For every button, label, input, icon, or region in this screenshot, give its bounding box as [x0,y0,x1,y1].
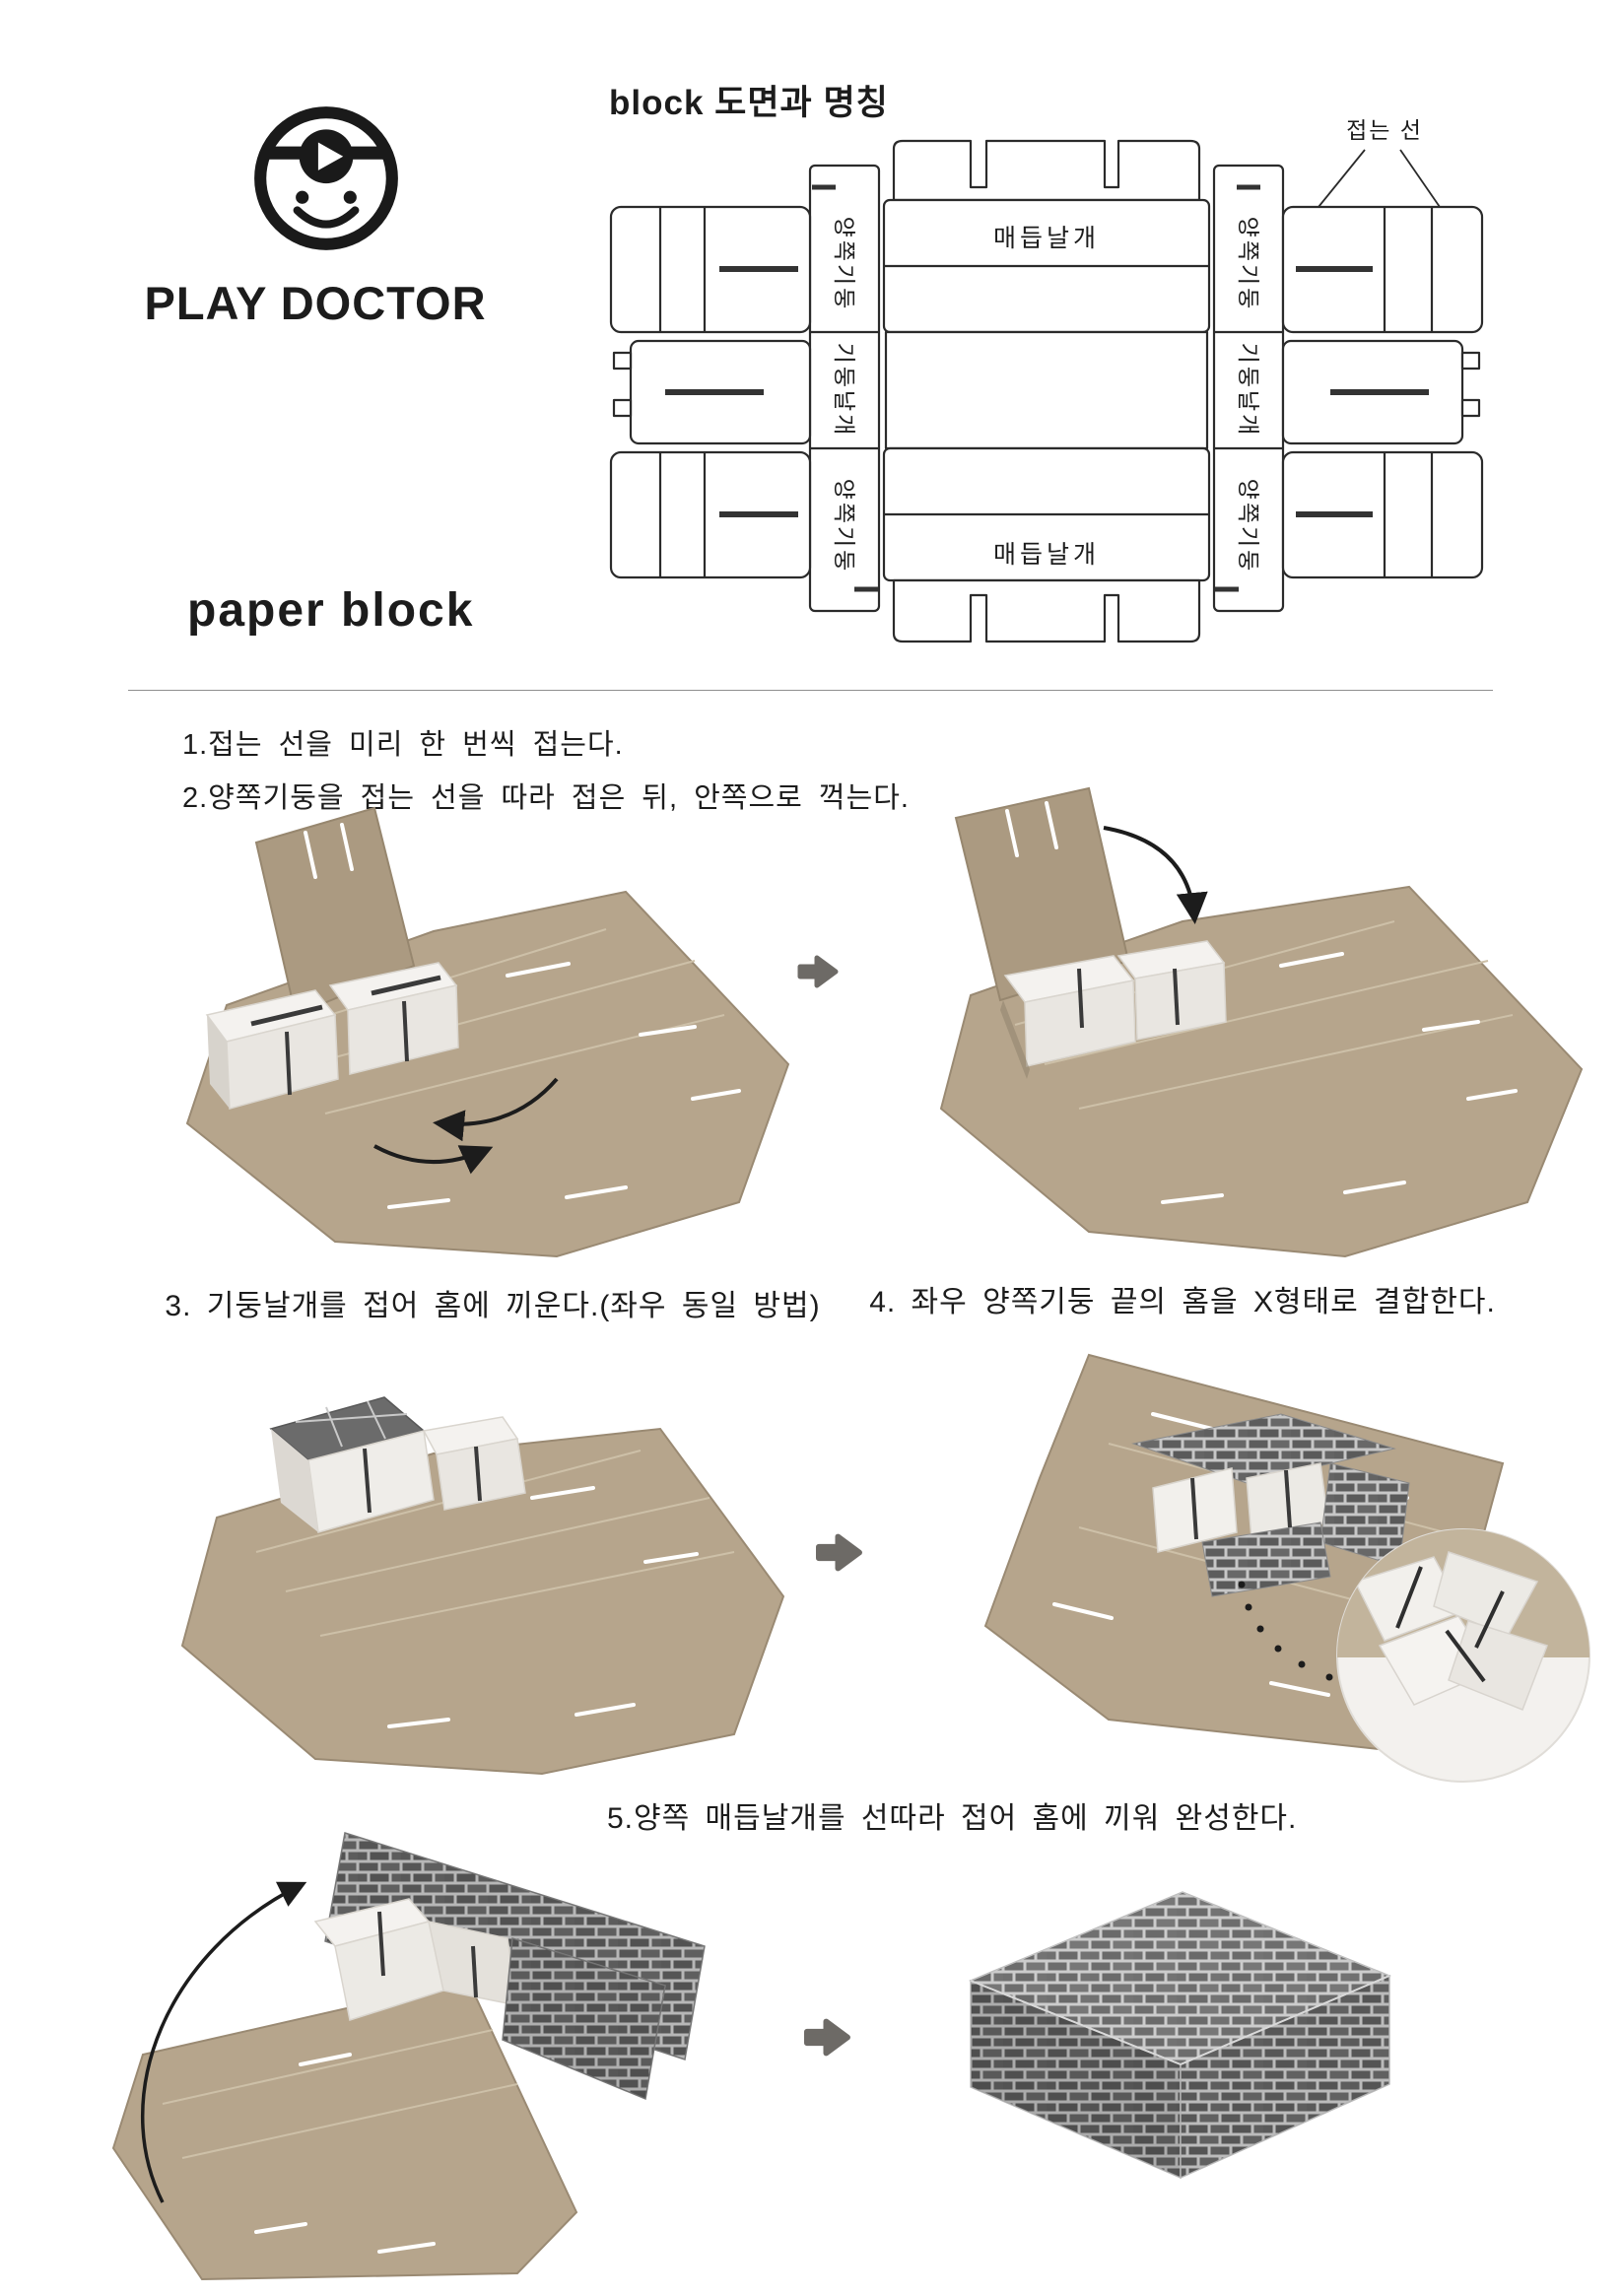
pillar-wing-label-left: 기둥날개 [832,343,857,439]
photo-step3-wings-inserted [94,1320,808,1779]
caption-step4: 4. 좌우 양쪽기둥 끝의 홈을 X형태로 결합한다. [867,1277,1498,1320]
knot-wing-label-top: 매듭날개 [993,225,1100,252]
step-arrow-icon [800,2010,854,2064]
photo-step5-closing-flaps [54,1818,754,2281]
bottom-tab-strip [894,580,1199,642]
top-tab-strip [894,141,1199,200]
instruction-step1: 1.접는 선을 미리 한 번씩 접는다. [182,721,624,763]
knot-wing-label-bottom: 매듭날개 [993,541,1100,569]
photo-finished-brick-block [916,1853,1439,2188]
side-pillar-label-bottom-left: 양쪽기둥 [832,479,857,574]
pillar-wing-label-right: 기둥날개 [1236,343,1261,439]
center-panel [886,332,1207,448]
side-pillar-label-top-left: 양쪽기둥 [832,217,857,312]
zoom-inset [1337,1529,1591,1782]
fold-line-pointers [1319,150,1440,207]
fold-line-label: 접는 선 [1346,117,1423,143]
section-divider [128,690,1493,691]
side-pillar-label-bottom-right: 양쪽기둥 [1236,479,1261,574]
side-pillar-label-top-right: 양쪽기둥 [1236,217,1261,312]
photo-step4-x-joint [857,1330,1621,1784]
play-doctor-logo-icon [246,99,406,258]
photo-step1-flat-sheet [94,783,793,1266]
caption-step3: 3. 기둥날개를 접어 홈에 끼운다.(좌우 동일 방법) [148,1281,838,1324]
product-name: paper block [187,583,474,638]
brand-name: PLAY DOCTOR [118,276,512,330]
block-dieline-diagram: 접는 선 매듭날개 매듭날개 양쪽기둥 기둥날개 양쪽기둥 양쪽기둥 기둥날개 … [606,108,1493,660]
curved-arrow-icon [1104,828,1194,916]
page: PLAY DOCTOR paper block block 도면과 명칭 [0,0,1623,2296]
finished-block [971,1892,1389,2178]
step-arrow-icon [794,948,842,995]
photo-step2-pillars-folded [857,774,1616,1266]
